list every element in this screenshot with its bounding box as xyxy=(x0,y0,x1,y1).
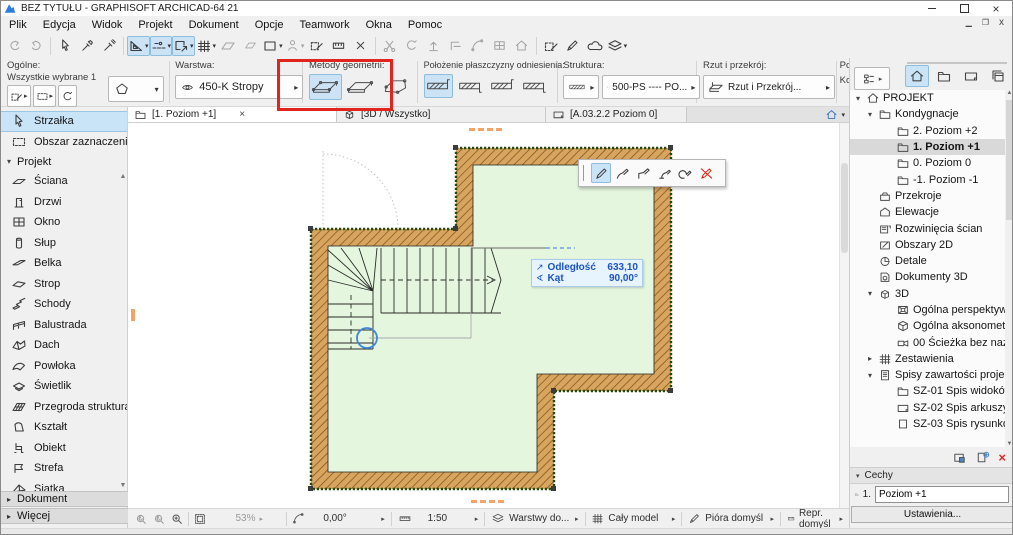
tool-icon xyxy=(11,235,27,251)
snap-plane-icon[interactable] xyxy=(217,36,239,56)
chevron-right-icon: ▸ xyxy=(879,75,883,83)
representation-value: Repr. domyśl xyxy=(799,508,836,530)
angle-icon: ∢ xyxy=(536,273,544,284)
open-in-window-icon[interactable] xyxy=(952,450,967,465)
profile-button[interactable]: ▾ xyxy=(284,36,306,56)
coordinate-tracker: ↗ Odległość 633,10 ∢ Kąt 90,00° xyxy=(531,259,643,287)
pen-icon xyxy=(688,512,701,525)
layers-quick-button[interactable]: ▾ xyxy=(606,36,629,56)
info-box-bar: Ogólne: Wszystkie wybrane 1 ▸ ▸ ▾ Warstw… xyxy=(1,58,849,107)
composite-value: 500-PS ---- PO... xyxy=(612,82,687,93)
tree-item[interactable]: 0. Poziom 0 xyxy=(850,155,1006,171)
menu-bar: PlikEdycjaWidokProjektDokumentOpcjeTeamw… xyxy=(1,16,1012,33)
tool-item[interactable]: Schody xyxy=(1,294,127,315)
pet-palette xyxy=(578,159,726,187)
tree-item[interactable]: ▾ PROJEKT xyxy=(850,90,1006,106)
tab-icon xyxy=(552,108,565,121)
edit-selection-icon[interactable] xyxy=(540,36,562,56)
doc-minimize-icon[interactable]: ▁ xyxy=(966,18,972,27)
pen-set-control[interactable]: Pióra domyśl ▸ xyxy=(682,509,780,528)
tool-icon xyxy=(11,358,27,374)
toolbox-group-dokument[interactable]: ▸ Dokument xyxy=(1,491,128,507)
structure-label: Struktura: xyxy=(563,60,691,71)
redo-icon[interactable] xyxy=(25,36,47,56)
tool-arrow[interactable]: Strzałka xyxy=(1,111,127,132)
tool-icon xyxy=(11,419,27,435)
infobox-clipped-section: Powi Kon xyxy=(837,58,849,106)
arrow-cursor-icon xyxy=(11,113,27,129)
marquee-options-button[interactable]: ▾ xyxy=(261,36,284,56)
tree-expand-icon[interactable]: ▾ xyxy=(865,371,875,380)
infobox-layer-section: Warstwa: 450-K Stropy ▸ xyxy=(169,58,302,106)
snap-grid-button[interactable]: ▾ xyxy=(195,36,218,56)
orientation-value: 0,00° xyxy=(323,513,346,524)
archicad-window: BEZ TYTUŁU - GRAPHISOFT ARCHICAD-64 21 ×… xyxy=(0,0,1013,535)
standard-toolbar: ▾ ▾ ▾ ▾ ▾ ▾ ▾ xyxy=(1,33,1012,58)
tool-icon xyxy=(11,337,27,353)
general-label: Ogólne: xyxy=(7,60,97,71)
tool-icon xyxy=(11,317,27,333)
model-view-options-control[interactable]: Repr. domyśl ▸ xyxy=(781,509,849,528)
tree-item-icon xyxy=(878,368,892,382)
pickup-parameters-icon[interactable] xyxy=(76,36,98,56)
story-number: 1. xyxy=(863,489,871,500)
favorites-button[interactable]: ▾ xyxy=(172,36,195,56)
properties-section-header[interactable]: ▾ Cechy xyxy=(850,467,1013,484)
tree-item-icon xyxy=(878,107,892,121)
doc-close-icon[interactable]: x xyxy=(999,17,1004,28)
snap-guides-icon[interactable] xyxy=(306,36,328,56)
infobox-geometry-section: Metody geometrii: xyxy=(303,58,417,106)
model-grid-icon xyxy=(591,512,604,525)
resize-window-icon[interactable] xyxy=(489,36,511,56)
guide-lines xyxy=(323,151,398,231)
active-view-icon xyxy=(824,108,839,121)
toolbox-tool-list: Ściana Drzwi Okno Słup xyxy=(1,171,127,499)
view-display-combo[interactable]: Rzut i Przekrój... ▸ xyxy=(703,75,835,99)
tool-icon xyxy=(11,173,27,189)
tree-expand-icon[interactable]: ▾ xyxy=(865,110,875,119)
default-settings-button[interactable]: ▸ xyxy=(7,85,31,107)
fill-type-combo[interactable]: ▸ xyxy=(563,75,599,99)
rotate-view-icon xyxy=(292,512,305,525)
tree-item[interactable]: Dokumenty 3D xyxy=(850,269,1006,285)
tree-item-icon xyxy=(896,384,910,398)
chevron-right-icon: ▸ xyxy=(7,495,11,504)
layers-icon xyxy=(491,512,505,525)
tab-close-icon[interactable]: × xyxy=(239,109,245,120)
fit-in-window-icon[interactable] xyxy=(193,512,207,526)
tool-item[interactable]: Przegroda strukturalna xyxy=(1,397,127,418)
tab-bar: [1. Poziom +1] × [3D / Wszystko] [A.03.2… xyxy=(128,107,849,123)
magnet-button[interactable] xyxy=(58,85,77,107)
chevron-down-icon: ▾ xyxy=(841,111,845,119)
menu-item[interactable]: Okna xyxy=(358,18,400,32)
pet-arc-by-point-icon[interactable] xyxy=(654,163,674,183)
zoom-in-icon[interactable] xyxy=(170,512,184,526)
tree-item[interactable]: Elewacje xyxy=(850,204,1006,220)
undo-icon[interactable] xyxy=(3,36,25,56)
marquee-icon xyxy=(11,134,27,150)
scale-value: 1:50 xyxy=(428,513,447,524)
tree-item[interactable]: SZ-03 Spis rysunków xyxy=(850,416,1006,432)
tool-item[interactable]: Okno xyxy=(1,212,127,233)
tree-item[interactable]: Ogólna perspektywa xyxy=(850,302,1006,318)
menu-item[interactable]: Widok xyxy=(84,18,131,32)
archicad-logo-icon xyxy=(4,3,16,14)
layer-label: Warstwa: xyxy=(175,60,297,71)
view-map-icon[interactable] xyxy=(932,65,956,87)
tool-item[interactable]: Balustrada xyxy=(1,315,127,336)
toolbox-panel: Strzałka Obszar zaznaczenia ▾ Projekt Śc… xyxy=(1,107,128,535)
tab-overflow-controls[interactable]: ▾ xyxy=(824,107,849,122)
tab-list: [1. Poziom +1] × [3D / Wszystko] [A.03.2… xyxy=(128,107,687,122)
tree-item-icon xyxy=(896,319,910,333)
navigator-footer-icons: × xyxy=(850,447,1013,467)
clipped-label-top: Powi xyxy=(840,60,849,71)
structure-display-value: Cały model xyxy=(608,513,658,524)
tree-item-icon xyxy=(878,205,892,219)
plane-top-icon[interactable] xyxy=(424,74,453,98)
polygon-geometry-combo[interactable]: ▾ xyxy=(108,76,164,102)
story-icon xyxy=(855,488,859,501)
pen-set-value: Pióra domyśl xyxy=(705,513,763,524)
tree-scrollbar[interactable]: ▲▼ xyxy=(1005,90,1013,447)
zoom-level-control[interactable]: 53% ▸ xyxy=(213,509,286,528)
tool-icon xyxy=(11,214,27,230)
chevron-right-icon: ▸ xyxy=(260,515,264,523)
snap-plane-alt-icon[interactable] xyxy=(239,36,261,56)
infobox-polygon-combo-section: ▾ xyxy=(102,58,169,106)
navigator-tree: ▾ PROJEKT ▾ Kondygnacje 2. Poziom +2 xyxy=(850,90,1006,447)
layer-combination-value: Warstwy do... xyxy=(509,513,569,524)
distance-value: 633,10 xyxy=(607,262,638,273)
tool-item[interactable]: Strefa xyxy=(1,458,127,479)
plane-core-bottom-icon[interactable] xyxy=(520,74,549,98)
menu-item[interactable]: Dokument xyxy=(181,18,247,32)
toolbox-group-wiecej[interactable]: ▸ Więcej xyxy=(1,508,128,524)
tree-item[interactable]: SZ-01 Spis widoków xyxy=(850,383,1006,399)
tab-icon xyxy=(343,108,356,121)
tool-item[interactable]: Dach xyxy=(1,335,127,356)
chevron-right-icon: ▸ xyxy=(575,515,579,523)
menu-item[interactable]: Plik xyxy=(1,18,35,32)
close-button[interactable]: × xyxy=(980,1,1012,16)
tab-icon xyxy=(134,108,147,121)
story-name-input[interactable] xyxy=(875,486,1009,503)
selection-settings-button[interactable]: ▸ xyxy=(33,85,57,107)
zoom-forward-icon[interactable] xyxy=(152,512,166,526)
tool-item[interactable]: Świetlik xyxy=(1,376,127,397)
floor-plan-drawing xyxy=(131,123,840,508)
tree-item-icon xyxy=(896,417,910,431)
tool-item[interactable]: Obiekt xyxy=(1,438,127,459)
tree-item-icon xyxy=(896,173,910,187)
infobox-structure-section: Struktura: ▸ 500-PS ---- PO... ▸ xyxy=(557,58,696,106)
project-tree-icon xyxy=(862,72,876,86)
chevron-right-icon: ▸ xyxy=(839,515,843,523)
tree-item-icon xyxy=(896,124,910,138)
tool-icon xyxy=(11,255,27,271)
scale-control[interactable]: 1:50 ▸ xyxy=(392,509,485,528)
menu-item[interactable]: Pomoc xyxy=(400,18,450,32)
view-tab[interactable]: [1. Poziom +1] × xyxy=(128,107,337,122)
tree-item[interactable]: ▸ Zestawienia xyxy=(850,351,1006,367)
zoom-level-value: 53% xyxy=(235,513,255,524)
tree-item-icon xyxy=(878,238,892,252)
toolbox-scrollbar[interactable]: ▲▼ xyxy=(119,173,127,489)
infobox-view-section: Rzut i przekrój: Rzut i Przekrój... ▸ xyxy=(697,58,836,106)
tool-item[interactable]: Powłoka xyxy=(1,356,127,377)
tree-item-icon xyxy=(866,91,880,105)
floor-plan-canvas[interactable]: ↗ Odległość 633,10 ∢ Kąt 90,00° xyxy=(128,123,849,508)
menu-item[interactable]: Projekt xyxy=(130,18,180,32)
tree-item-icon xyxy=(896,140,910,154)
tree-item[interactable]: 2. Poziom +2 xyxy=(850,123,1006,139)
pet-cancel-icon[interactable] xyxy=(696,163,716,183)
tree-item[interactable]: Obszary 2D xyxy=(850,237,1006,253)
representation-icon xyxy=(787,512,795,525)
tool-icon xyxy=(11,460,27,476)
split-icon[interactable] xyxy=(379,36,401,56)
fillet-icon[interactable] xyxy=(467,36,489,56)
dimensions-icon[interactable] xyxy=(328,36,350,56)
tree-item-icon xyxy=(878,254,892,268)
tree-item-icon xyxy=(878,270,892,284)
adjust-icon[interactable] xyxy=(401,36,423,56)
tree-item-icon xyxy=(878,352,892,366)
tool-item[interactable]: Belka xyxy=(1,253,127,274)
tree-item[interactable]: SZ-02 Spis arkuszy xyxy=(850,400,1006,416)
arrange-icon[interactable] xyxy=(350,36,372,56)
reference-plane-label: Położenie płaszczyzny odniesienia: xyxy=(424,60,552,70)
chevron-right-icon: ▸ xyxy=(7,512,11,521)
zoom-back-icon[interactable] xyxy=(134,512,148,526)
slab-polygon-method-icon[interactable] xyxy=(309,74,342,100)
tool-item[interactable]: Drzwi xyxy=(1,192,127,213)
palette-grab-bar[interactable] xyxy=(907,62,1007,64)
pet-tangent-arc-icon[interactable] xyxy=(633,163,653,183)
selection-count-label: Wszystkie wybrane 1 xyxy=(7,72,97,83)
new-viewpoint-icon[interactable] xyxy=(975,450,990,465)
view-tab[interactable]: [3D / Wszystko] xyxy=(337,107,546,122)
window-bottom-edge xyxy=(1,528,1012,535)
tool-icon xyxy=(11,378,27,394)
guide-lines-button[interactable]: ▾ xyxy=(127,36,150,56)
infobox-general-section: Ogólne: Wszystkie wybrane 1 ▸ ▸ xyxy=(1,58,102,106)
tree-item[interactable]: ▾ Kondygnacje xyxy=(850,106,1006,122)
tool-icon xyxy=(11,296,27,312)
distance-icon: ↗ xyxy=(536,262,544,273)
maximize-button[interactable] xyxy=(948,1,980,16)
angle-label: Kąt xyxy=(548,273,564,284)
chevron-right-icon: ▸ xyxy=(475,515,479,523)
elevate-icon[interactable] xyxy=(423,36,445,56)
delete-icon[interactable]: × xyxy=(998,451,1006,464)
infobox-reference-plane-section: Położenie płaszczyzny odniesienia: xyxy=(418,58,557,106)
quick-options-bar: 53% ▸ 0,00° ▸ 1:50 ▸ Warstwy do... ▸ Cał… xyxy=(128,508,849,528)
tree-item[interactable]: Ogólna aksonometria xyxy=(850,318,1006,334)
tree-item-icon xyxy=(878,189,892,203)
tree-item[interactable]: Detale xyxy=(850,253,1006,269)
teamwork-cloud-icon[interactable] xyxy=(584,36,606,56)
navigator-panel: ▸ ▾ PROJEKT ▾ Kondygnacje xyxy=(849,58,1013,535)
annotate-icon[interactable] xyxy=(562,36,584,56)
tool-marquee[interactable]: Obszar zaznaczenia xyxy=(1,132,127,153)
slab-walls xyxy=(311,148,671,489)
chevron-right-icon: ▸ xyxy=(770,515,774,523)
tree-item[interactable]: Rozwinięcia ścian xyxy=(850,220,1006,236)
tool-icon xyxy=(11,399,27,415)
tool-item[interactable]: Kształt xyxy=(1,417,127,438)
layer-value: 450-K Stropy xyxy=(199,81,263,93)
pet-arc-by-center-icon[interactable] xyxy=(675,163,695,183)
tree-item-icon xyxy=(896,401,910,415)
slab-rectangle-method-icon[interactable] xyxy=(344,74,377,100)
chevron-right-icon: ▸ xyxy=(381,515,385,523)
slab-rotated-method-icon[interactable] xyxy=(379,74,412,100)
canvas-vertical-scrollbar[interactable] xyxy=(839,123,849,508)
tree-expand-icon[interactable]: ▸ xyxy=(865,354,875,363)
tree-item[interactable]: 00 Ścieżka bez nazwy xyxy=(850,334,1006,350)
menu-item[interactable]: Edycja xyxy=(35,18,84,32)
layer-combo[interactable]: 450-K Stropy ▸ xyxy=(175,75,303,99)
chevron-right-icon: ▸ xyxy=(672,515,676,523)
publisher-icon[interactable] xyxy=(986,65,1010,87)
project-map-icon[interactable] xyxy=(905,65,929,87)
tree-expand-icon[interactable]: ▾ xyxy=(853,94,863,103)
tool-icon xyxy=(11,194,27,210)
tool-icon xyxy=(11,276,27,292)
tool-icon xyxy=(11,440,27,456)
tree-item[interactable]: 1. Poziom +1 xyxy=(850,139,1006,155)
menu-item[interactable]: Teamwork xyxy=(291,18,357,32)
tree-item[interactable]: ▾ 3D xyxy=(850,286,1006,302)
tree-item-icon xyxy=(878,222,892,236)
orientation-control[interactable]: 0,00° ▸ xyxy=(286,509,390,528)
tool-item[interactable]: Słup xyxy=(1,233,127,254)
composite-combo[interactable]: 500-PS ---- PO... ▸ xyxy=(602,75,700,99)
layer-combination-control[interactable]: Warstwy do... ▸ xyxy=(485,509,584,528)
menu-item[interactable]: Opcje xyxy=(247,18,292,32)
minimize-button[interactable] xyxy=(916,1,948,16)
window-title: BEZ TYTUŁU - GRAPHISOFT ARCHICAD-64 21 xyxy=(21,3,238,14)
clipped-label-bottom: Kon xyxy=(840,75,849,86)
pet-straight-segment-icon[interactable] xyxy=(591,163,611,183)
project-chooser-button[interactable]: ▸ xyxy=(854,67,890,90)
view-tab[interactable]: [A.03.2.2 Poziom 0] xyxy=(546,107,687,122)
view-display-value: Rzut i Przekrój... xyxy=(728,82,801,93)
structure-display-control[interactable]: Cały model ▸ xyxy=(585,509,681,528)
palette-drag-handle[interactable] xyxy=(583,165,588,181)
trim-icon[interactable] xyxy=(445,36,467,56)
select-elements-icon[interactable] xyxy=(54,36,76,56)
home-view-icon[interactable] xyxy=(511,36,533,56)
tree-item-icon xyxy=(896,156,910,170)
view-display-label: Rzut i przekrój: xyxy=(703,60,831,71)
settings-button[interactable]: Ustawienia... xyxy=(851,506,1013,523)
inject-parameters-icon[interactable] xyxy=(98,36,120,56)
distance-label: Odległość xyxy=(548,262,596,273)
tree-item-icon xyxy=(878,287,892,301)
tool-item[interactable]: Ściana xyxy=(1,171,127,192)
geometry-methods-label: Metody geometrii: xyxy=(309,60,412,71)
tree-item[interactable]: Przekroje xyxy=(850,188,1006,204)
ruler-icon xyxy=(398,512,412,525)
tree-expand-icon[interactable]: ▾ xyxy=(865,289,875,298)
plane-core-top-icon[interactable] xyxy=(488,74,517,98)
chevron-down-icon: ▾ xyxy=(7,157,11,166)
layout-book-icon[interactable] xyxy=(959,65,983,87)
tree-item[interactable]: ▾ Spisy zawartości projektu xyxy=(850,367,1006,383)
tree-item-icon xyxy=(896,336,910,350)
tool-item[interactable]: Strop xyxy=(1,274,127,295)
tree-item-icon xyxy=(896,303,910,317)
doc-restore-icon[interactable]: ❐ xyxy=(982,18,989,27)
pet-arc-segment-icon[interactable] xyxy=(612,163,632,183)
document-window-controls: ▁ ❐ x xyxy=(966,17,1004,28)
chevron-down-icon: ▾ xyxy=(856,472,860,480)
toolbox-group-design[interactable]: ▾ Projekt xyxy=(1,152,127,171)
trace-reference-button[interactable]: ▾ xyxy=(150,36,173,56)
tree-item[interactable]: -1. Poziom -1 xyxy=(850,171,1006,187)
plane-bottom-icon[interactable] xyxy=(456,74,485,98)
title-bar: BEZ TYTUŁU - GRAPHISOFT ARCHICAD-64 21 × xyxy=(1,1,1012,16)
angle-value: 90,00° xyxy=(609,273,638,284)
